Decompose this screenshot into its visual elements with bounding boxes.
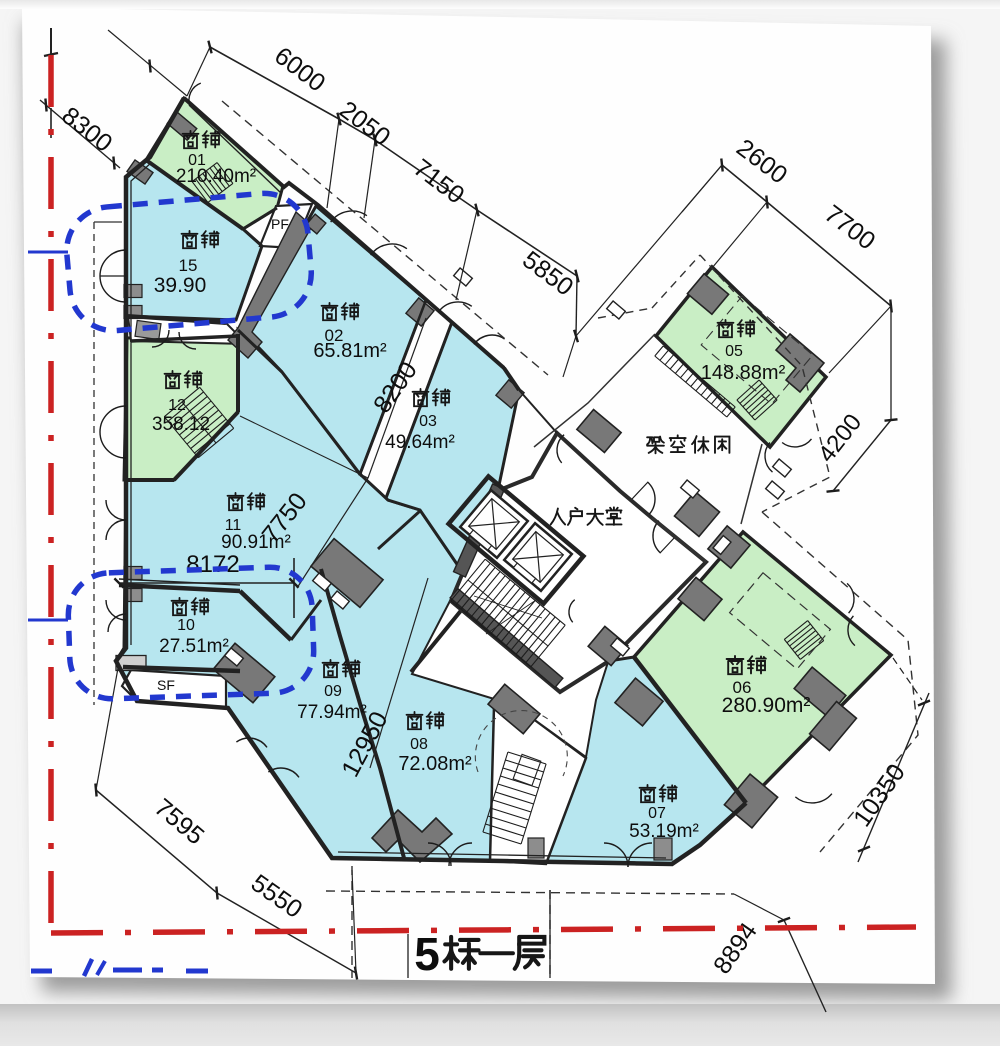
svg-text:65.81m²: 65.81m² <box>313 340 387 362</box>
svg-text:15: 15 <box>179 256 198 275</box>
svg-text:53.19m²: 53.19m² <box>629 821 699 842</box>
svg-text:90.91m²: 90.91m² <box>221 532 291 553</box>
svg-text:09: 09 <box>324 683 342 700</box>
svg-text:8172: 8172 <box>186 551 239 578</box>
svg-text:12: 12 <box>168 397 186 414</box>
svg-text:280.90m²: 280.90m² <box>722 694 811 717</box>
svg-text:SF: SF <box>157 677 175 693</box>
svg-text:210.40m²: 210.40m² <box>176 166 256 187</box>
svg-text:27.51m²: 27.51m² <box>159 636 229 657</box>
svg-text:72.08m²: 72.08m² <box>398 753 472 775</box>
svg-text:08: 08 <box>410 736 428 753</box>
svg-text:07: 07 <box>648 805 666 822</box>
svg-text:148.88m²: 148.88m² <box>701 362 786 384</box>
svg-text:05: 05 <box>725 343 743 360</box>
svg-text:10: 10 <box>177 617 195 634</box>
svg-text:39.90: 39.90 <box>154 274 207 297</box>
svg-text:358.12: 358.12 <box>152 414 210 435</box>
svg-text:03: 03 <box>419 413 437 430</box>
svg-text:49.64m²: 49.64m² <box>385 432 455 453</box>
svg-text:5: 5 <box>414 928 440 980</box>
svg-text:77.94m²: 77.94m² <box>297 702 367 723</box>
svg-text:PF: PF <box>271 216 289 232</box>
